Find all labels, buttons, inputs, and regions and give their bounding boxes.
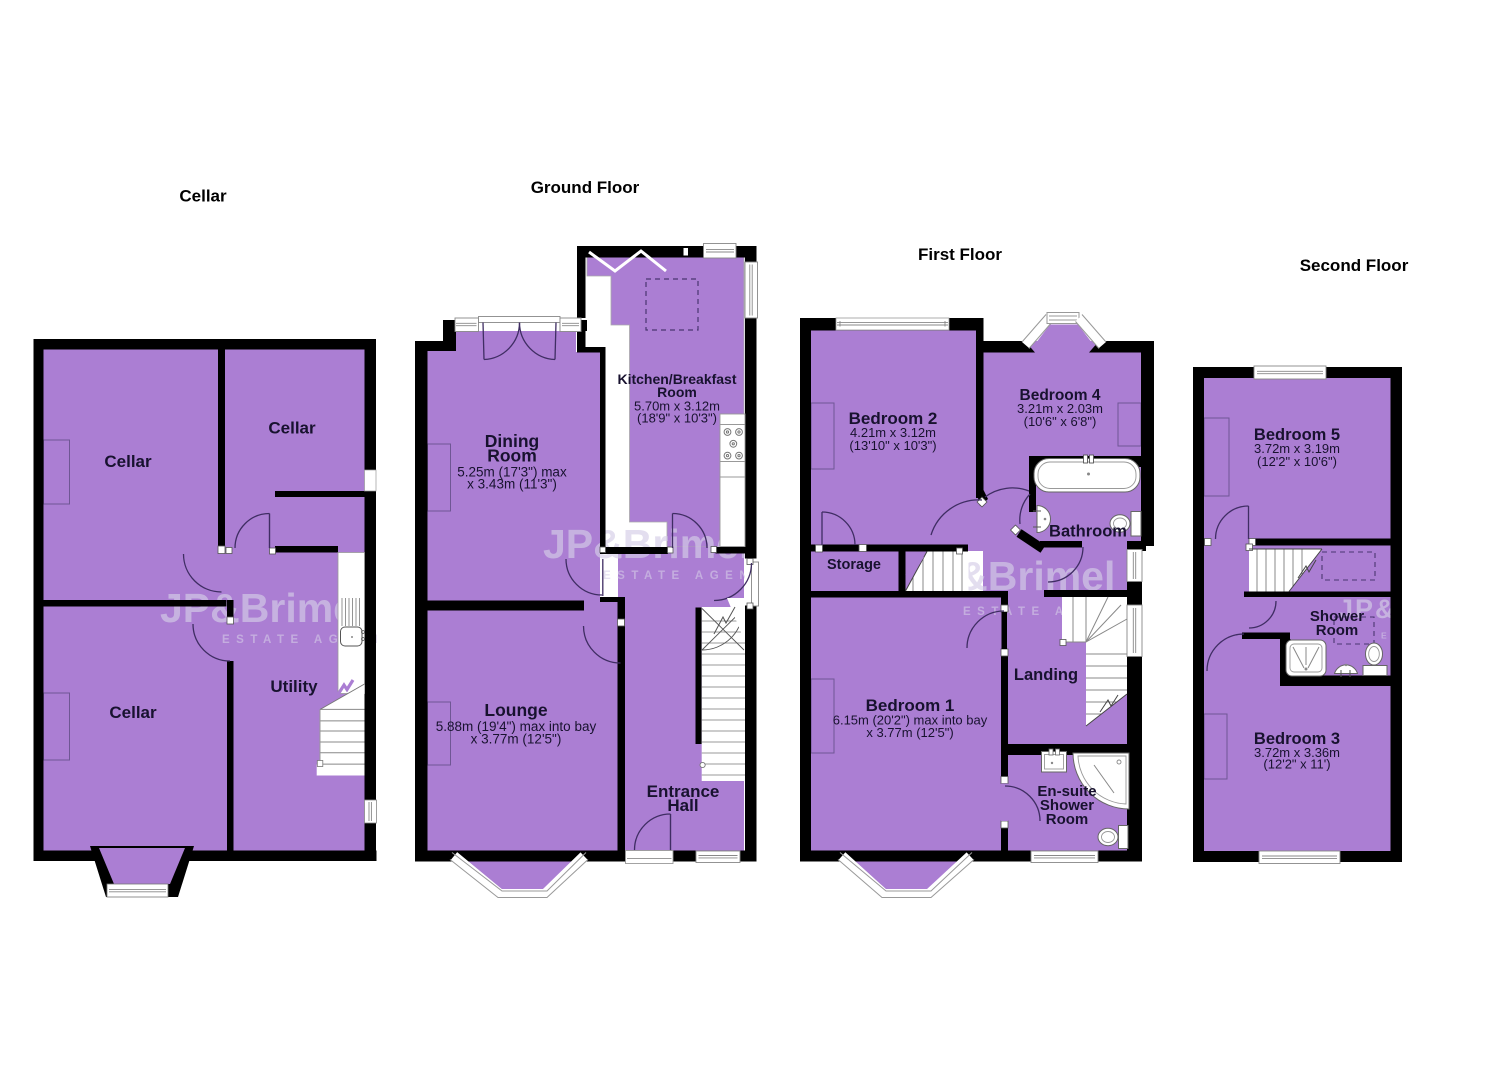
svg-text:x 3.43m (11'3"): x 3.43m (11'3")	[467, 477, 557, 492]
svg-text:Bathroom: Bathroom	[1049, 523, 1127, 541]
svg-text:JP&Brimel: JP&Brimel	[160, 585, 367, 631]
svg-text:Ground Floor: Ground Floor	[531, 178, 640, 197]
svg-text:Cellar: Cellar	[268, 419, 316, 438]
svg-text:Lounge: Lounge	[484, 700, 547, 720]
svg-text:Room: Room	[1046, 811, 1089, 828]
svg-text:JP&Brimel: JP&Brimel	[543, 521, 750, 567]
svg-text:Hall: Hall	[667, 796, 698, 815]
svg-text:Landing: Landing	[1014, 666, 1078, 684]
svg-text:Cellar: Cellar	[179, 187, 227, 206]
svg-text:Storage: Storage	[827, 557, 881, 573]
svg-text:First Floor: First Floor	[918, 245, 1002, 264]
svg-text:(18'9" x 10'3"): (18'9" x 10'3")	[637, 411, 717, 426]
svg-text:Utility: Utility	[270, 677, 318, 696]
svg-text:Second Floor: Second Floor	[1300, 256, 1409, 275]
svg-text:x 3.77m (12'5"): x 3.77m (12'5")	[471, 732, 562, 747]
svg-text:x 3.77m (12'5"): x 3.77m (12'5")	[866, 725, 953, 740]
svg-text:Room: Room	[487, 446, 537, 466]
svg-text:(13'10" x 10'3"): (13'10" x 10'3")	[849, 438, 936, 453]
svg-text:Room: Room	[1316, 622, 1359, 639]
svg-text:(12'2" x 10'6"): (12'2" x 10'6")	[1257, 454, 1337, 469]
svg-text:(10'6" x 6'8"): (10'6" x 6'8")	[1024, 414, 1097, 429]
svg-text:(12'2" x 11'): (12'2" x 11')	[1263, 757, 1330, 772]
svg-text:Cellar: Cellar	[104, 452, 152, 471]
svg-text:Cellar: Cellar	[109, 703, 157, 722]
